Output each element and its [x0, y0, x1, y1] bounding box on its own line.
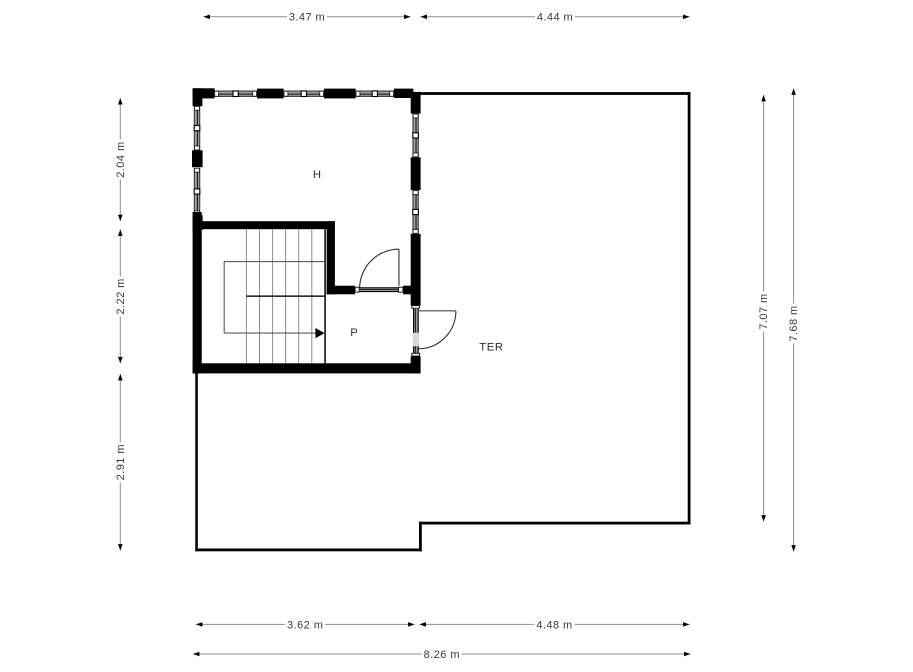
svg-text:2.22 m: 2.22 m: [115, 278, 127, 314]
svg-text:2.91 m: 2.91 m: [115, 444, 127, 480]
svg-text:7.68 m: 7.68 m: [788, 305, 800, 341]
svg-text:8.26 m: 8.26 m: [424, 649, 460, 661]
svg-text:3.62 m: 3.62 m: [287, 619, 323, 631]
svg-text:4.48 m: 4.48 m: [536, 619, 572, 631]
svg-text:H: H: [313, 169, 321, 181]
svg-text:7.07 m: 7.07 m: [758, 293, 770, 329]
svg-text:P: P: [350, 327, 358, 339]
svg-text:3.47 m: 3.47 m: [289, 12, 325, 24]
svg-text:2.04 m: 2.04 m: [115, 141, 127, 177]
svg-text:TER: TER: [479, 342, 503, 354]
svg-text:4.44 m: 4.44 m: [537, 12, 573, 24]
